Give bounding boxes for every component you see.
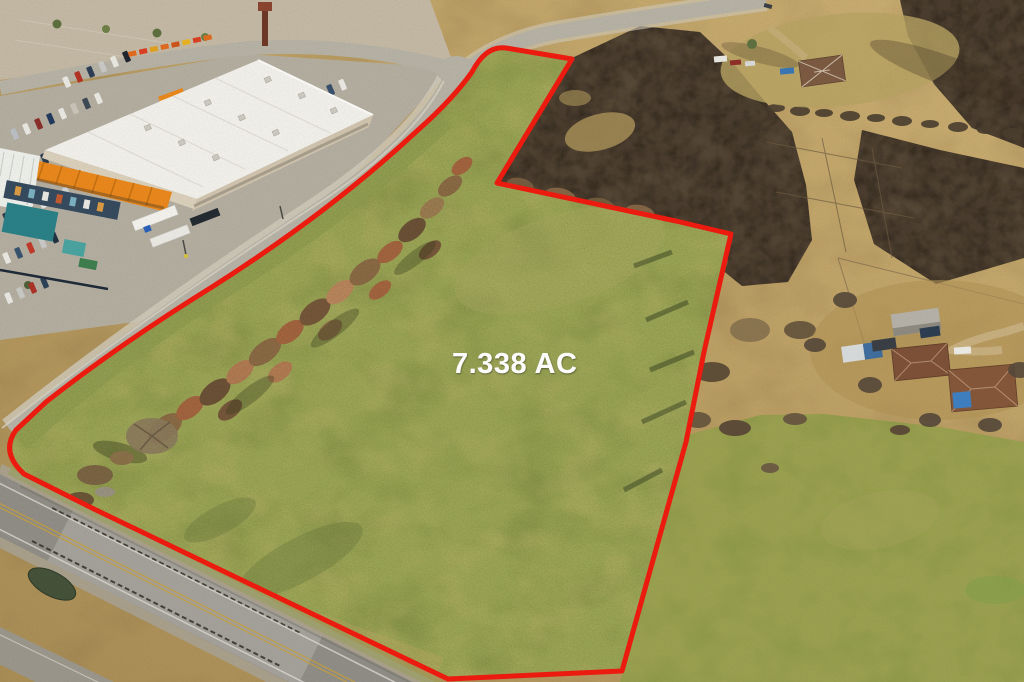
aerial-photo-frame: 7.338 AC [0,0,1024,682]
aerial-photo: 7.338 AC [0,0,1024,682]
photo-grain [0,0,1024,682]
